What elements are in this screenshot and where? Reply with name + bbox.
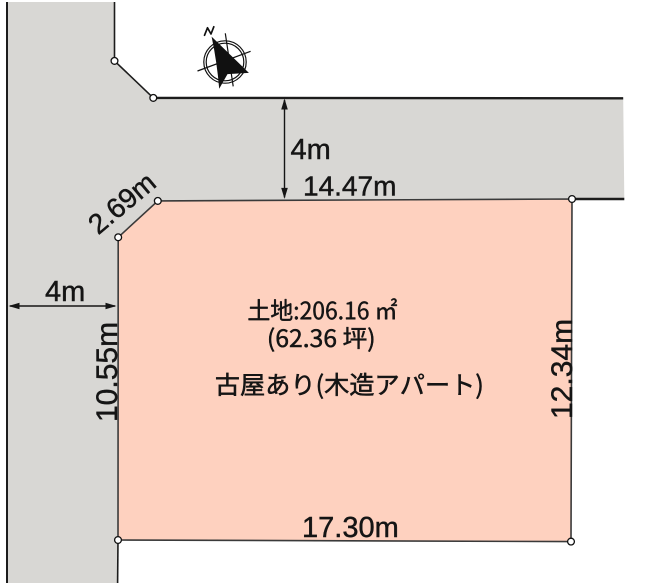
svg-text:10.55m: 10.55m — [91, 322, 124, 422]
svg-text:17.30m: 17.30m — [302, 512, 399, 544]
svg-text:12.34m: 12.34m — [546, 319, 579, 419]
svg-text:14.47m: 14.47m — [303, 171, 396, 202]
svg-text:4m: 4m — [45, 276, 85, 308]
svg-text:4m: 4m — [291, 134, 331, 166]
